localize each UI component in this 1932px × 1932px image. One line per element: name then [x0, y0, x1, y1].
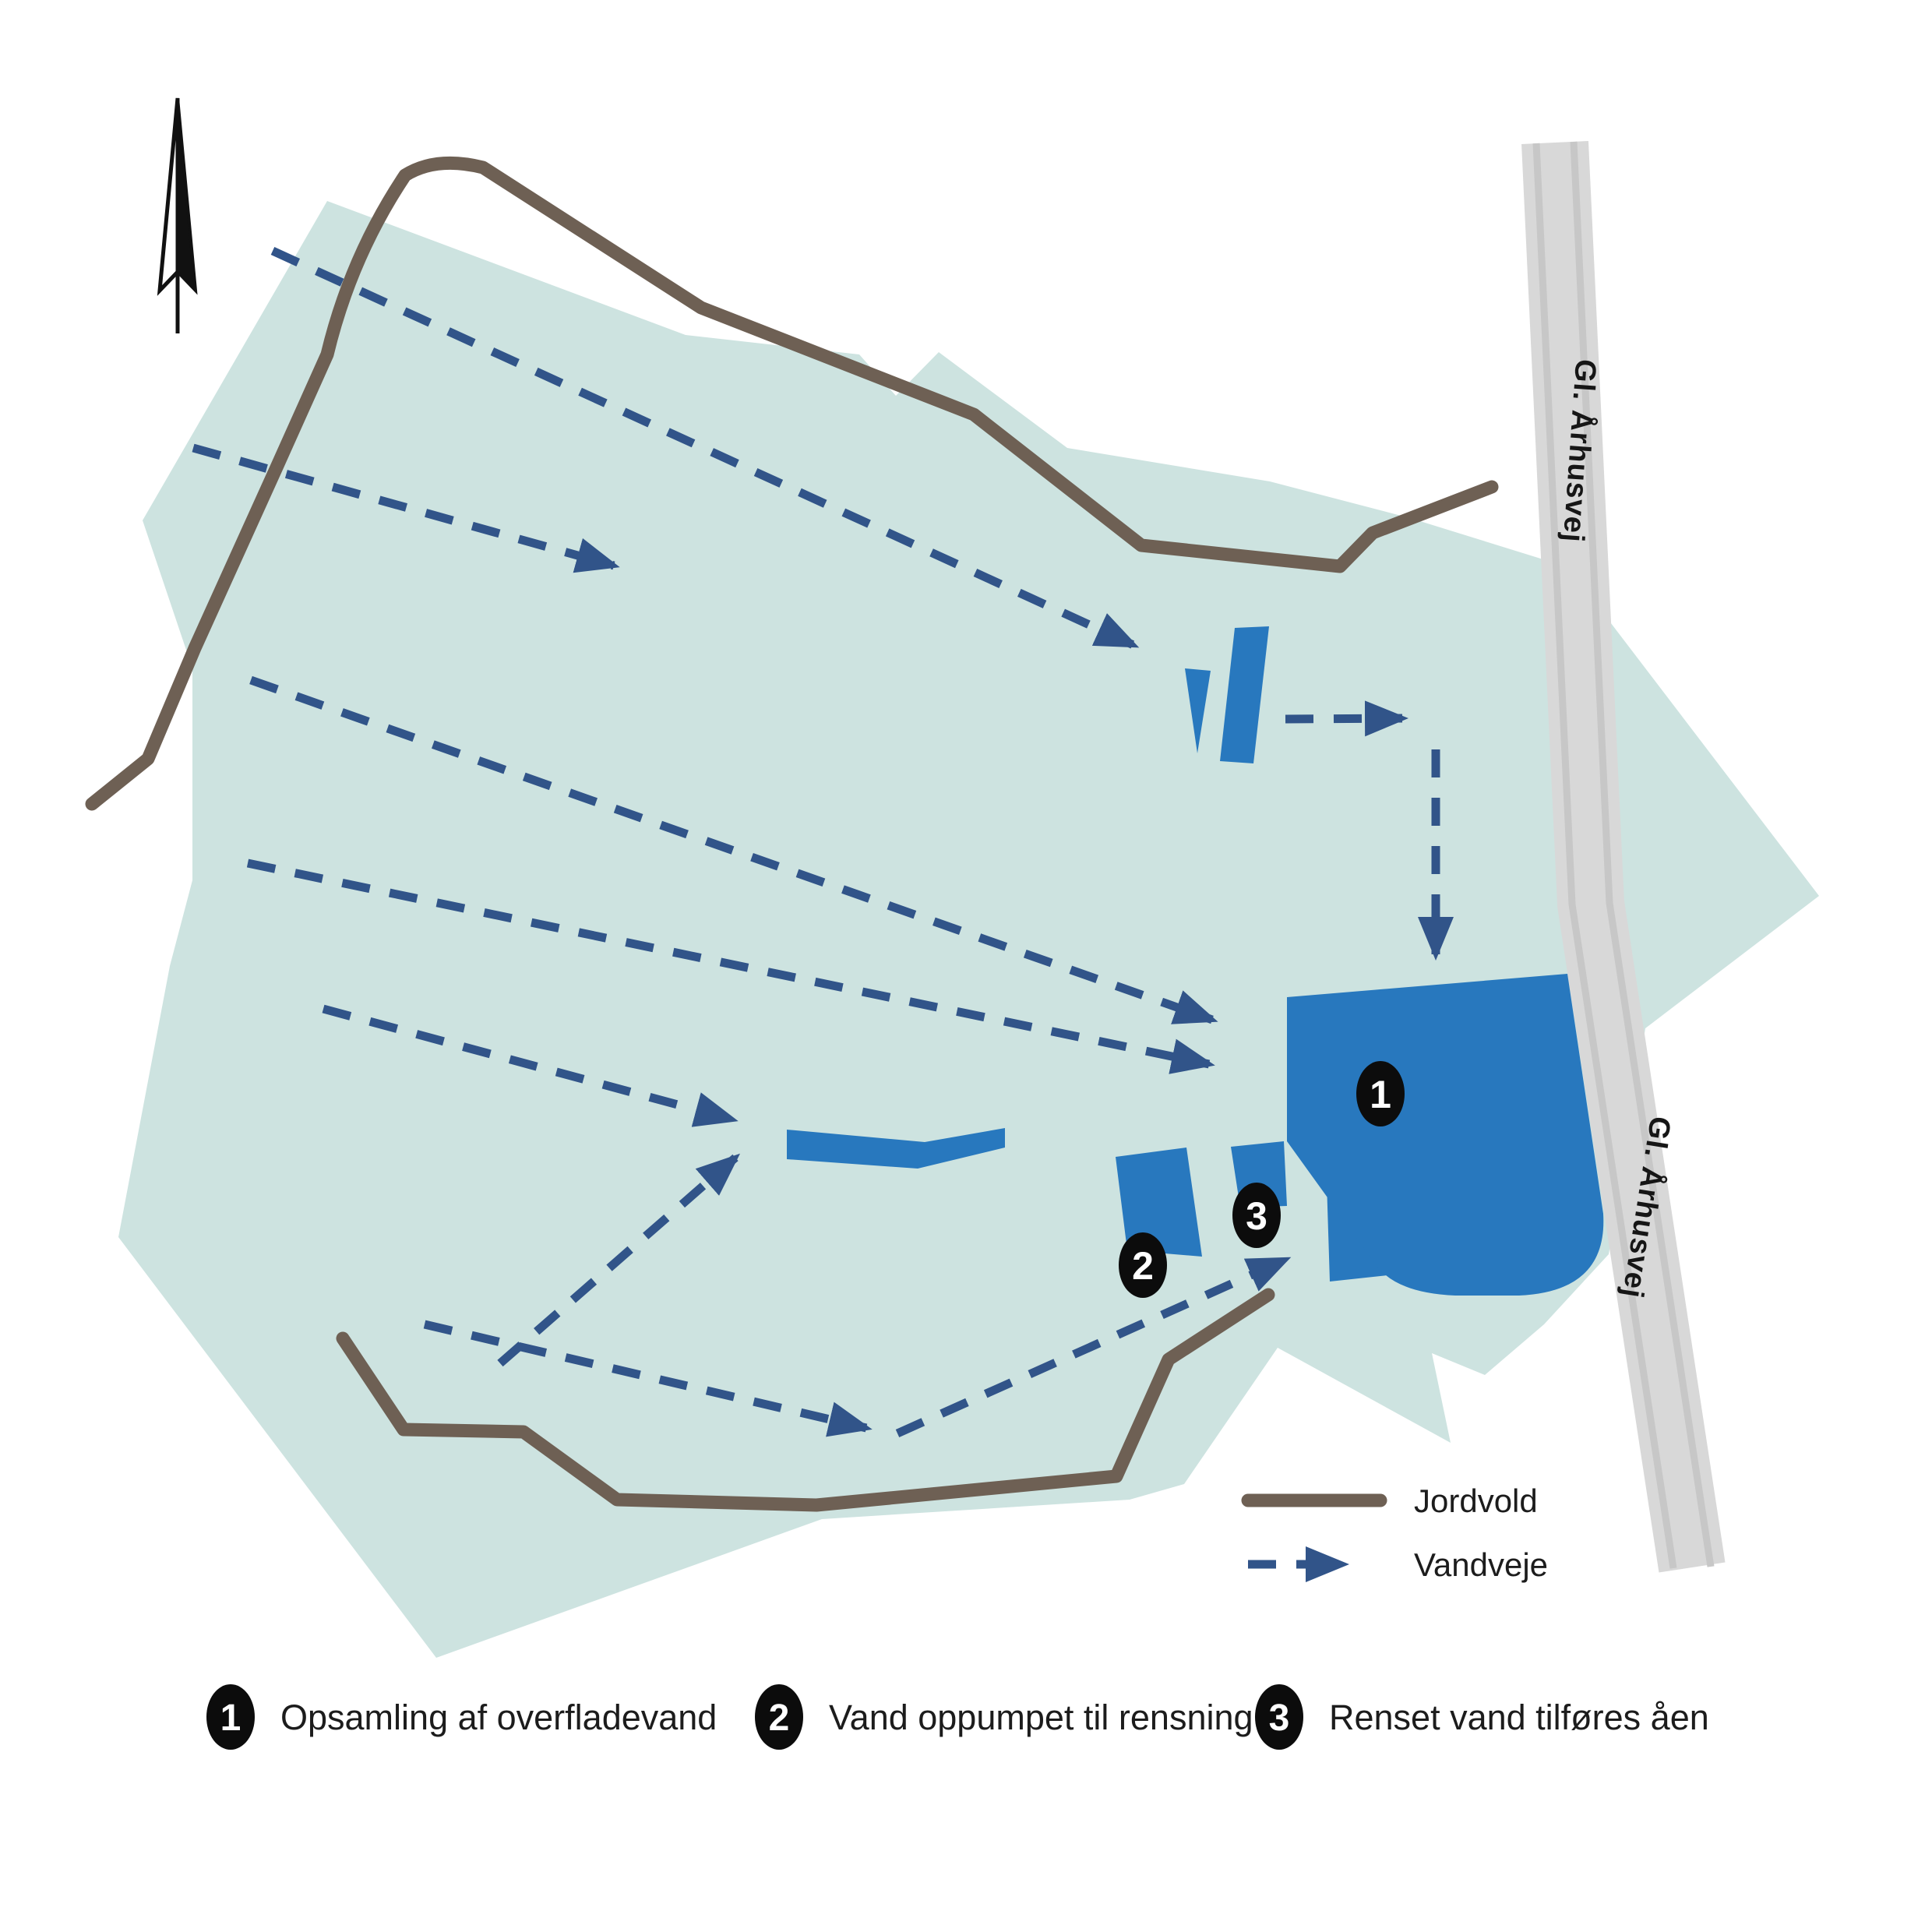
numbered-key: 1 Opsamling af overfladevand 2 Vand oppu… [206, 1684, 1709, 1750]
key-item-2: 2 Vand oppumpet til rensning [755, 1684, 1253, 1750]
map-marker-3-number: 3 [1246, 1194, 1267, 1238]
water-management-map: Gl. Århusvej Gl. Århusvej 1 2 [0, 0, 1932, 1932]
key-item-3-number: 3 [1269, 1698, 1290, 1739]
north-arrow-icon [160, 98, 196, 333]
site-map-figure: Gl. Århusvej Gl. Århusvej 1 2 [0, 0, 1932, 1932]
key-item-1-label: Opsamling af overfladevand [280, 1698, 717, 1737]
map-marker-1: 1 [1356, 1061, 1405, 1126]
map-marker-3: 3 [1232, 1183, 1281, 1248]
key-item-3-label: Renset vand tilføres åen [1329, 1698, 1709, 1737]
waterway-arrow-9 [1285, 718, 1402, 719]
key-item-2-label: Vand oppumpet til rensning [829, 1698, 1253, 1737]
legend-jordvold-label: Jordvold [1414, 1482, 1538, 1519]
north-arrow-right-half [178, 98, 196, 291]
key-item-3: 3 Renset vand tilføres åen [1255, 1684, 1709, 1750]
map-marker-2: 2 [1119, 1232, 1167, 1298]
key-item-1: 1 Opsamling af overfladevand [206, 1684, 717, 1750]
map-legend: Jordvold Vandveje [1248, 1482, 1548, 1583]
legend-vandveje-label: Vandveje [1414, 1546, 1548, 1583]
key-item-2-number: 2 [769, 1698, 790, 1739]
map-marker-2-number: 2 [1132, 1244, 1154, 1288]
key-item-1-number: 1 [220, 1698, 241, 1739]
map-marker-1-number: 1 [1370, 1073, 1391, 1116]
north-arrow-left-half [160, 98, 178, 291]
